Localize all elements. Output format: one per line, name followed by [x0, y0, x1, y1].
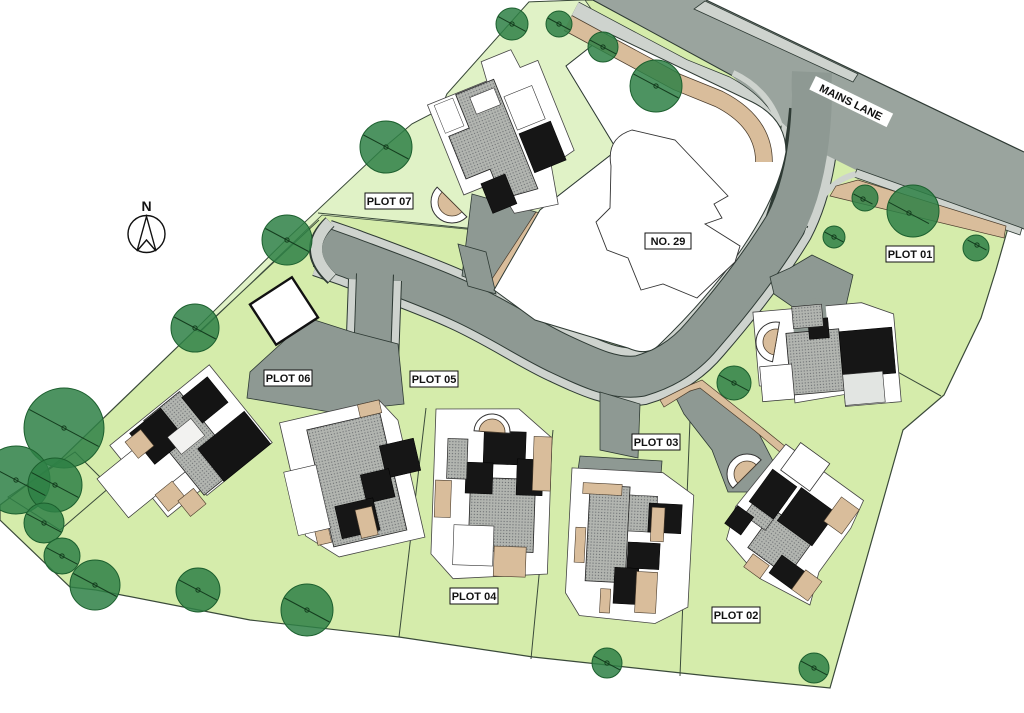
svg-text:PLOT 05: PLOT 05 — [412, 374, 457, 386]
svg-text:PLOT 06: PLOT 06 — [266, 373, 311, 385]
svg-text:PLOT 02: PLOT 02 — [714, 610, 759, 622]
svg-text:PLOT 07: PLOT 07 — [367, 196, 412, 208]
svg-text:NO. 29: NO. 29 — [651, 236, 686, 248]
svg-text:PLOT 01: PLOT 01 — [888, 249, 933, 261]
svg-text:PLOT 03: PLOT 03 — [634, 437, 679, 449]
svg-text:N: N — [141, 198, 151, 214]
svg-text:PLOT 04: PLOT 04 — [452, 591, 498, 603]
